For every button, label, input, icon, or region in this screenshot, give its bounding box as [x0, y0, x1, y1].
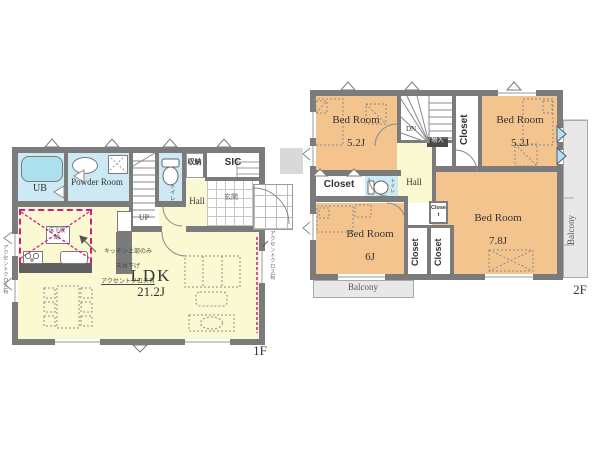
- kitchen-note-line1: キッチン上部のみ: [95, 249, 161, 257]
- wall: [478, 96, 482, 166]
- wall: [310, 170, 401, 176]
- wall: [310, 274, 563, 280]
- stairs-2f: [401, 96, 452, 143]
- wall: [432, 166, 563, 172]
- wall: [557, 90, 563, 280]
- kitchen-sink-icon: [60, 251, 88, 264]
- wall: [452, 96, 456, 166]
- label-balcony-right: Balcony: [567, 200, 576, 260]
- wall: [12, 147, 265, 153]
- wall: [404, 196, 408, 280]
- wall: [186, 226, 259, 232]
- label-floor-storage: 床下収納: [47, 228, 67, 241]
- note-left-wall: アクセントクロス有: [1, 244, 7, 294]
- label-hall-1f: Hall: [185, 197, 209, 206]
- plan-separator: [280, 148, 303, 174]
- genkan-tiles: [207, 181, 253, 226]
- stove-icon: [23, 251, 43, 264]
- kitchen-note-line3: アクセントクロス有: [95, 279, 161, 287]
- label-ub: UB: [25, 184, 55, 195]
- label-hall-2f: Hall: [398, 178, 430, 187]
- bedroom-ne-size: 5.2J: [487, 138, 553, 150]
- wall: [155, 153, 159, 207]
- wall: [310, 196, 408, 202]
- bedroom-se-name: Bed Room: [460, 213, 536, 225]
- label-toilet-2f: トイレ: [389, 178, 394, 193]
- label-sic: SIC: [219, 158, 247, 169]
- wall: [129, 226, 162, 232]
- floorplan-canvas: UB Powder Room トイレ 収納 SIC 玄関 Hall UP LDK…: [0, 0, 600, 449]
- wall: [64, 153, 68, 204]
- label-closet-small: Closet: [431, 205, 446, 218]
- wall: [310, 90, 563, 96]
- wall: [12, 339, 265, 345]
- hall-2f: [397, 143, 432, 203]
- label-closet-mid2: Closet: [434, 231, 443, 273]
- label-bedroom-ne: Bed Room 5.2J: [487, 103, 553, 161]
- label-floor2: 2F: [566, 283, 594, 297]
- kitchen-counter: [19, 263, 92, 273]
- label-under-stairs: 物入: [427, 138, 448, 144]
- label-genkan: 玄関: [220, 194, 242, 201]
- wall: [397, 96, 401, 143]
- pantry-niche: [117, 211, 132, 232]
- bedroom-nw-size: 5.2J: [325, 138, 387, 150]
- label-storage-1f: 収納: [185, 159, 204, 166]
- label-balcony-bottom: Balcony: [337, 283, 389, 292]
- wall: [427, 228, 431, 275]
- washing-machine-icon: [108, 155, 128, 174]
- label-bedroom-nw: Bed Room 5.2J: [325, 103, 387, 161]
- bedroom-sw-size: 6J: [338, 252, 402, 264]
- label-closet-mid1: Closet: [411, 231, 420, 273]
- wall: [205, 177, 259, 181]
- porch-tiles: [253, 184, 293, 230]
- label-up: UP: [135, 214, 153, 222]
- label-bedroom-se: Bed Room 7.8J: [460, 201, 536, 259]
- kitchen-note: キッチン上部のみ 天井下げ アクセントクロス有: [95, 241, 161, 294]
- wall: [259, 147, 265, 345]
- label-toilet-1f: トイレ: [168, 183, 174, 201]
- bedroom-ne-name: Bed Room: [487, 115, 553, 127]
- bathtub-icon: [21, 156, 63, 182]
- wall: [408, 225, 454, 228]
- washbasin-icon: [72, 157, 98, 174]
- bedroom-nw-name: Bed Room: [325, 115, 387, 127]
- label-powder: Powder Room: [70, 178, 124, 187]
- label-dn: DN: [402, 126, 420, 133]
- kitchen-note-line2: 天井下げ: [95, 264, 161, 272]
- wall: [12, 147, 18, 345]
- wall: [155, 201, 186, 207]
- wall: [450, 228, 454, 275]
- wall: [432, 143, 436, 203]
- wall: [12, 201, 133, 207]
- wall: [310, 90, 316, 280]
- note-right-wall: アクセントクロス有: [268, 230, 274, 280]
- label-bedroom-sw: Bed Room 6J: [338, 217, 402, 275]
- label-floor1: 1F: [246, 344, 274, 358]
- label-closet-w: Closet: [317, 180, 361, 191]
- bedroom-sw-name: Bed Room: [338, 229, 402, 241]
- label-closet-nw: Closet: [460, 102, 471, 158]
- bedroom-se-size: 7.8J: [460, 236, 536, 248]
